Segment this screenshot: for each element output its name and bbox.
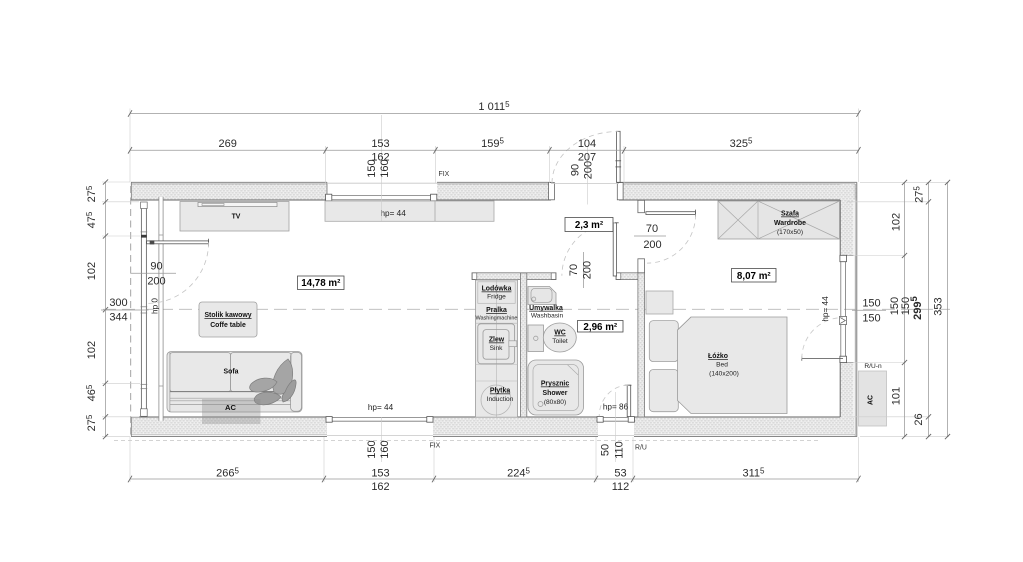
svg-text:269: 269: [219, 138, 237, 150]
svg-text:200: 200: [643, 239, 661, 251]
svg-text:Wardrobe: Wardrobe: [774, 220, 806, 227]
svg-text:162: 162: [371, 481, 389, 493]
svg-text:353: 353: [933, 297, 945, 315]
svg-text:90: 90: [570, 164, 582, 176]
svg-text:Shower: Shower: [543, 390, 568, 397]
svg-text:Bed: Bed: [716, 362, 728, 369]
svg-text:FIX: FIX: [439, 171, 450, 178]
svg-text:90: 90: [150, 261, 162, 273]
svg-text:Washbasin: Washbasin: [531, 312, 564, 319]
svg-text:200: 200: [582, 261, 594, 279]
svg-text:hp= 44: hp= 44: [821, 296, 830, 322]
svg-text:Washingmachine: Washingmachine: [476, 315, 518, 321]
svg-text:150: 150: [862, 312, 880, 324]
svg-text:Prysznic: Prysznic: [541, 381, 570, 388]
svg-text:(170x50): (170x50): [777, 229, 803, 236]
svg-text:Szafa: Szafa: [781, 211, 799, 218]
svg-text:Lodówka: Lodówka: [482, 286, 512, 293]
svg-text:50: 50: [600, 444, 612, 456]
svg-text:153: 153: [371, 468, 389, 480]
svg-text:Stolik kawowy: Stolik kawowy: [204, 312, 251, 319]
svg-text:8,07 m²: 8,07 m²: [737, 271, 772, 282]
svg-text:150: 150: [862, 298, 880, 310]
svg-text:14,78 m²: 14,78 m²: [301, 278, 341, 289]
svg-text:102: 102: [86, 262, 98, 280]
svg-text:26: 26: [913, 413, 925, 425]
svg-text:hp 0: hp 0: [151, 298, 160, 314]
svg-text:110: 110: [614, 441, 626, 459]
svg-text:2,96 m²: 2,96 m²: [583, 322, 618, 333]
svg-text:70: 70: [568, 264, 580, 276]
svg-text:Umywalka: Umywalka: [529, 305, 563, 312]
svg-text:70: 70: [646, 223, 658, 235]
svg-text:AC: AC: [225, 403, 236, 412]
svg-text:AC: AC: [868, 395, 875, 405]
svg-text:Pralka: Pralka: [486, 307, 507, 314]
svg-text:104: 104: [578, 138, 596, 150]
svg-text:200: 200: [583, 161, 595, 179]
svg-text:TV: TV: [232, 214, 241, 221]
svg-text:Sink: Sink: [490, 345, 504, 352]
svg-text:150: 150: [366, 159, 378, 177]
svg-text:153: 153: [371, 138, 389, 150]
svg-text:200: 200: [147, 276, 165, 288]
svg-text:344: 344: [109, 311, 127, 323]
svg-text:53: 53: [614, 468, 626, 480]
svg-text:160: 160: [379, 159, 391, 177]
svg-text:FIX: FIX: [430, 443, 441, 450]
svg-text:102: 102: [891, 213, 903, 231]
svg-text:(140x200): (140x200): [709, 371, 739, 378]
svg-text:Toilet: Toilet: [552, 338, 568, 345]
svg-text:160: 160: [379, 440, 391, 458]
svg-text:Łóżko: Łóżko: [708, 353, 728, 360]
svg-text:WC: WC: [554, 330, 566, 337]
svg-text:Zlew: Zlew: [489, 337, 505, 344]
svg-text:Sofa: Sofa: [224, 369, 239, 376]
svg-text:hp= 44: hp= 44: [368, 403, 394, 412]
svg-text:hp= 86: hp= 86: [603, 403, 629, 412]
svg-text:Induction: Induction: [487, 396, 514, 403]
svg-text:(80x80): (80x80): [544, 399, 566, 406]
svg-text:300: 300: [109, 297, 127, 309]
svg-text:Coffe table: Coffe table: [210, 322, 246, 329]
svg-text:102: 102: [86, 341, 98, 359]
svg-text:112: 112: [612, 481, 630, 493]
svg-text:Fridge: Fridge: [487, 294, 506, 301]
svg-text:2,3 m²: 2,3 m²: [575, 220, 604, 231]
svg-text:hp= 44: hp= 44: [381, 209, 407, 218]
svg-text:Płytka: Płytka: [490, 388, 510, 395]
svg-text:R/U: R/U: [635, 445, 647, 452]
svg-text:150: 150: [366, 440, 378, 458]
svg-text:R/U-n: R/U-n: [864, 363, 882, 370]
svg-text:101: 101: [891, 387, 903, 405]
